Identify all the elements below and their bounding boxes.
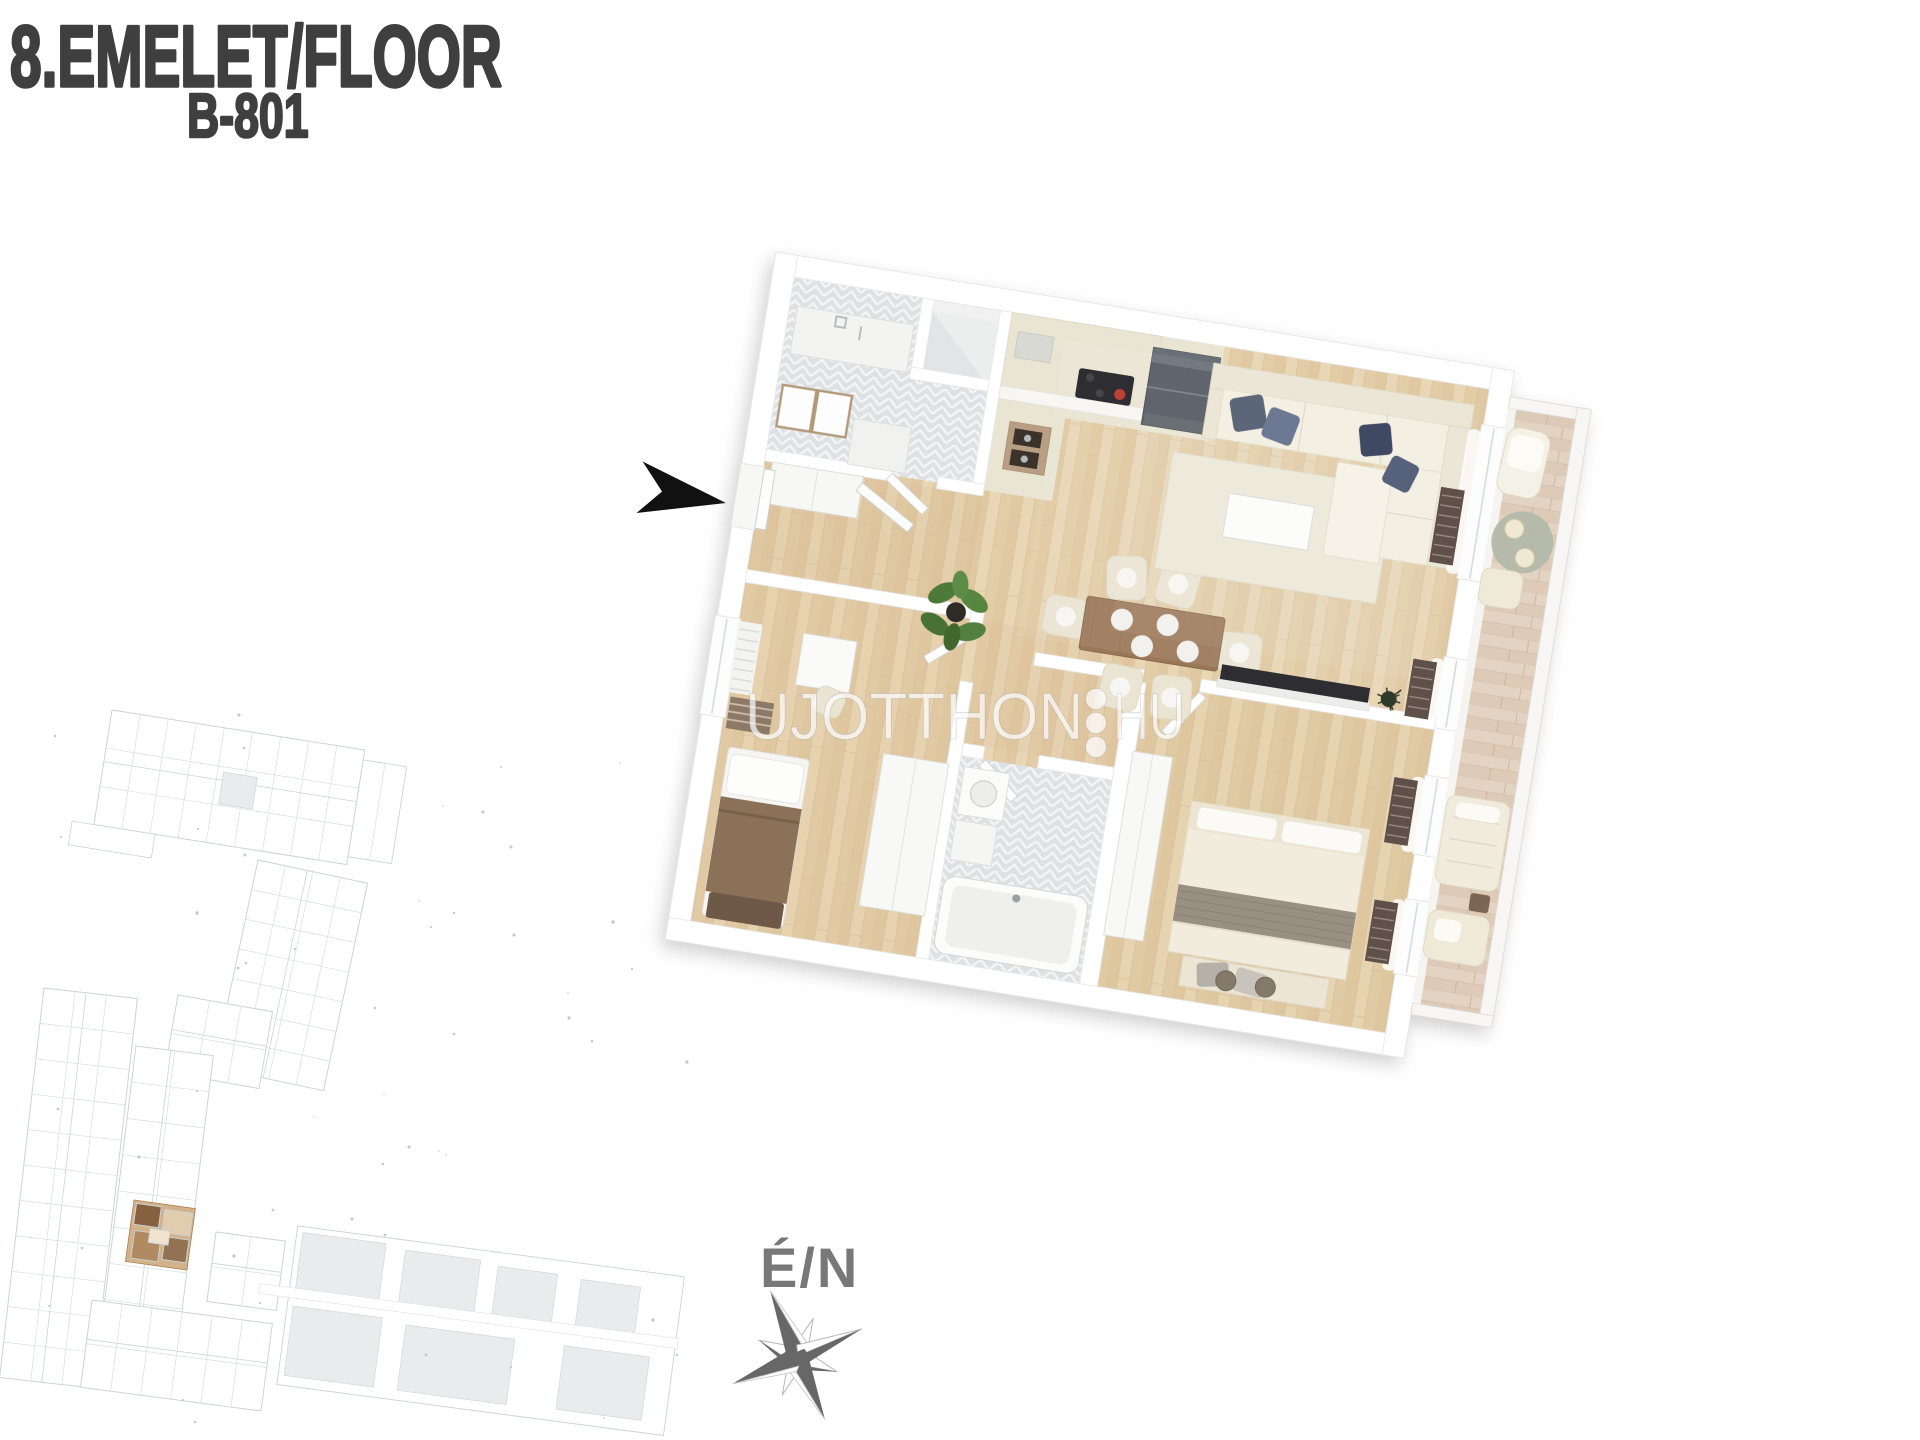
svg-text:B-801: B-801 (187, 82, 309, 151)
svg-text:É/N: É/N (760, 1236, 859, 1299)
svg-text:HU: HU (1113, 679, 1185, 753)
svg-text:UJOTTHON: UJOTTHON (745, 679, 1083, 753)
